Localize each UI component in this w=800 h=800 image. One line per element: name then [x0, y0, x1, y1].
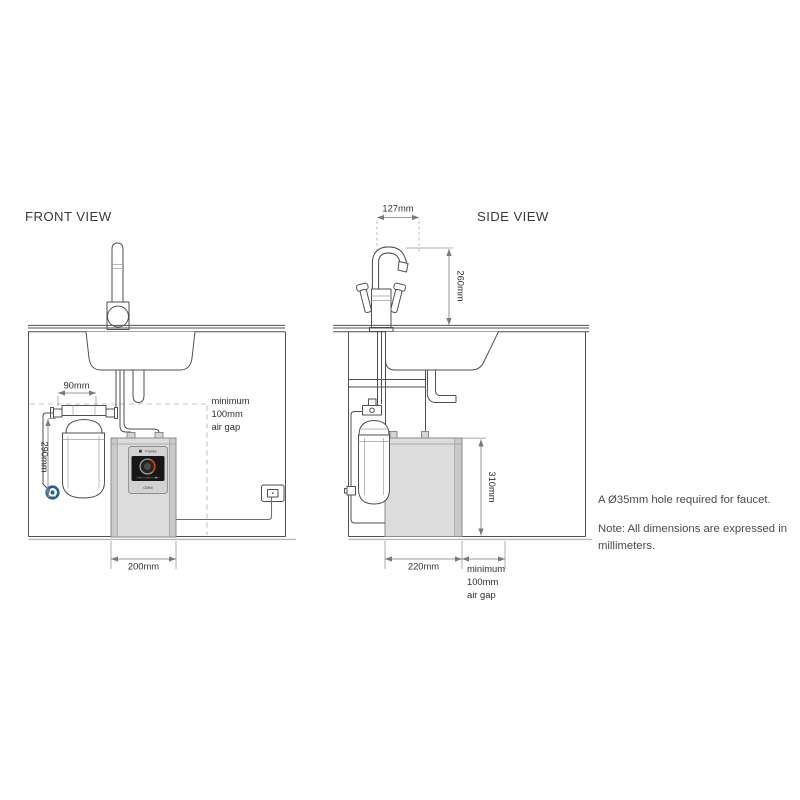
- dim-90mm-label: 90mm: [63, 380, 89, 391]
- air-gap-line1: minimum: [212, 395, 250, 406]
- heater-unit-front: Franke OMNI: [111, 433, 176, 538]
- heater-unit-side: [385, 432, 462, 537]
- note-dimensions-line2: millimeters.: [598, 540, 655, 552]
- dim-310mm-label: 310mm: [487, 471, 498, 502]
- air-gap-side-line3: air gap: [467, 589, 496, 600]
- air-gap-line3: air gap: [212, 421, 241, 432]
- front-view-title: FRONT VIEW: [25, 209, 112, 224]
- dim-200mm-label: 200mm: [128, 561, 159, 572]
- air-gap-line2: 100mm: [212, 408, 243, 419]
- dim-290mm-label: 290mm: [40, 441, 51, 472]
- panel-brand-label: Franke: [145, 449, 156, 453]
- installation-diagram: FRONT VIEW minim: [0, 0, 800, 800]
- control-panel: Franke OMNI: [129, 447, 168, 494]
- note-dimensions-line1: Note: All dimensions are expressed in: [598, 523, 787, 535]
- note-hole-requirement: A Ø35mm hole required for faucet.: [598, 494, 771, 506]
- dim-220mm-label: 220mm: [408, 561, 439, 572]
- installation-diagram-page: FRONT VIEW minim: [0, 0, 800, 800]
- sink-side: [386, 332, 499, 370]
- air-gap-side-line1: minimum: [467, 563, 505, 574]
- panel-model-label: OMNI: [143, 486, 152, 490]
- air-gap-side-line2: 100mm: [467, 576, 498, 587]
- spout-nozzle: [398, 262, 408, 273]
- side-view-title: SIDE VIEW: [477, 209, 549, 224]
- power-socket: [262, 485, 285, 502]
- dim-127mm-label: 127mm: [382, 203, 413, 214]
- dim-260mm-label: 260mm: [456, 270, 467, 301]
- sink-front: [86, 332, 195, 370]
- brand-logo-icon: [139, 450, 142, 453]
